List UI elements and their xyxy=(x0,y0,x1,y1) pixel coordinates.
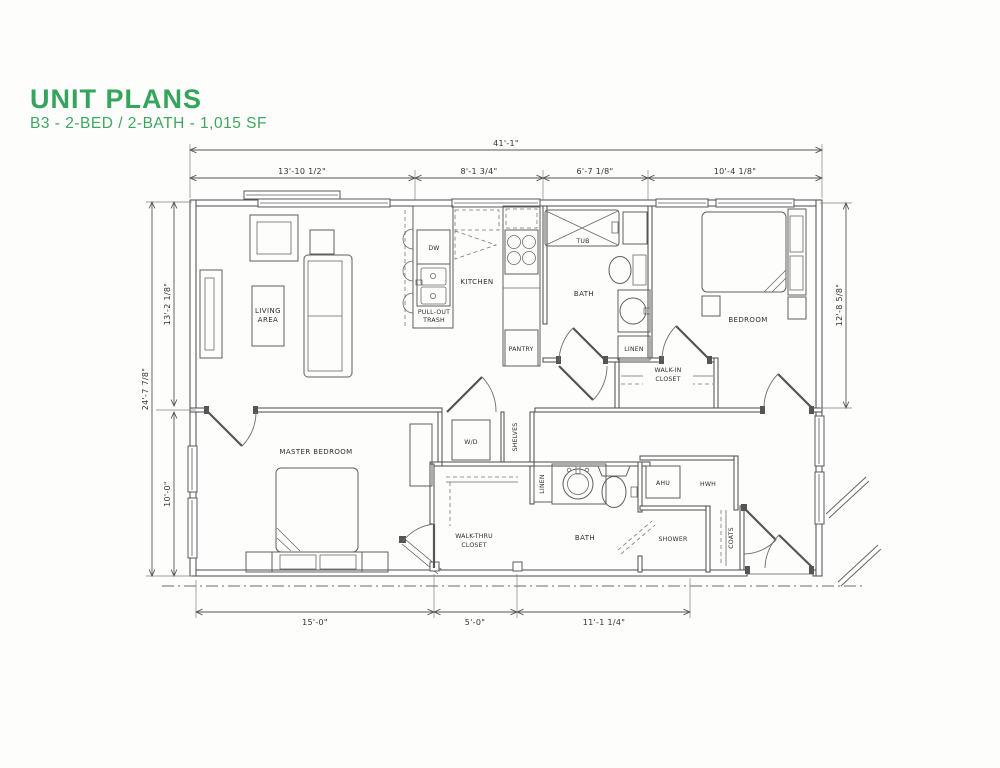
toilet-tank xyxy=(633,255,646,285)
stool-icon xyxy=(403,261,413,281)
dim-overall-depth: 24'-7 7/8" xyxy=(141,368,150,410)
dim-right-depth: 12'-8 5/8" xyxy=(835,284,844,326)
dim-d1: 13'-2 1/8" xyxy=(163,283,172,325)
nightstand xyxy=(246,552,272,572)
bed-icon xyxy=(702,212,786,292)
room-label-living-1: LIVING xyxy=(255,307,281,315)
bedroom-furniture xyxy=(702,209,806,319)
room-label-bath1: BATH xyxy=(574,290,594,298)
label-linen-1: LINEN xyxy=(624,346,644,353)
label-linen-2: LINEN xyxy=(539,474,546,494)
dim-b1: 15'-0" xyxy=(302,618,328,627)
bath1-vanity xyxy=(618,290,650,332)
label-coats: COATS xyxy=(728,527,735,549)
sink-icon xyxy=(620,298,646,324)
room-label-master: MASTER BEDROOM xyxy=(279,448,352,456)
dim-w2: 8'-1 3/4" xyxy=(460,167,497,176)
stool-icon xyxy=(403,293,413,313)
nightstand xyxy=(702,296,720,316)
outer-walls xyxy=(190,200,822,576)
room-label-kitchen: KITCHEN xyxy=(460,278,493,286)
label-dw: DW xyxy=(428,245,439,252)
label-pullout-2: TRASH xyxy=(422,317,445,324)
label-hwh: HWH xyxy=(700,481,716,488)
room-label-walkin-1: WALK-IN xyxy=(655,367,682,374)
unit-plan-page: UNIT PLANS B3 - 2-BED / 2-BATH - 1,015 S… xyxy=(0,0,1000,768)
neighbor-walls xyxy=(826,477,881,586)
dim-d2: 10'-0" xyxy=(163,481,172,507)
dim-w4: 10'-4 1/8" xyxy=(714,167,756,176)
bath2-vanity xyxy=(552,464,606,504)
label-shelves: SHELVES xyxy=(512,423,519,452)
toilet-icon xyxy=(609,257,631,284)
bath1-fixtures xyxy=(545,210,650,360)
label-pantry: PANTRY xyxy=(509,346,534,353)
dim-w1: 13'-10 1/2" xyxy=(278,167,326,176)
dim-b3: 11'-1 1/4" xyxy=(583,618,625,627)
room-label-walkthru-1: WALK-THRU xyxy=(455,533,493,540)
dresser xyxy=(410,424,432,486)
windows xyxy=(188,191,824,558)
dim-overall-width: 41'-1" xyxy=(493,139,519,148)
master-furniture xyxy=(246,424,432,572)
doors xyxy=(208,326,813,568)
room-label-living-2: AREA xyxy=(258,316,278,324)
dim-w3: 6'-7 1/8" xyxy=(576,167,613,176)
label-pullout-1: PULL-OUT xyxy=(418,309,450,316)
floor-plan-drawing: 41'-1" 13'-10 1/2" 8'-1 3/4" 6'-7 1/8" 1… xyxy=(0,0,1000,768)
kitchen-fixtures xyxy=(403,206,540,366)
nightstand xyxy=(362,552,388,572)
living-furniture xyxy=(200,215,352,377)
room-label-walkin-2: CLOSET xyxy=(655,376,680,383)
label-wd: W/D xyxy=(464,439,478,446)
label-tub: TUB xyxy=(575,238,589,245)
room-label-walkthru-2: CLOSET xyxy=(461,542,486,549)
label-ahu: AHU xyxy=(656,480,670,487)
nightstand xyxy=(788,297,806,319)
room-label-bath2: BATH xyxy=(575,534,595,542)
dim-b2: 5'-0" xyxy=(465,618,485,627)
toilet-icon xyxy=(598,466,630,476)
room-label-shower: SHOWER xyxy=(659,536,688,543)
room-label-bedroom: BEDROOM xyxy=(728,316,767,324)
stool-icon xyxy=(403,229,413,249)
side-table xyxy=(310,230,334,254)
tv-console xyxy=(200,270,222,358)
